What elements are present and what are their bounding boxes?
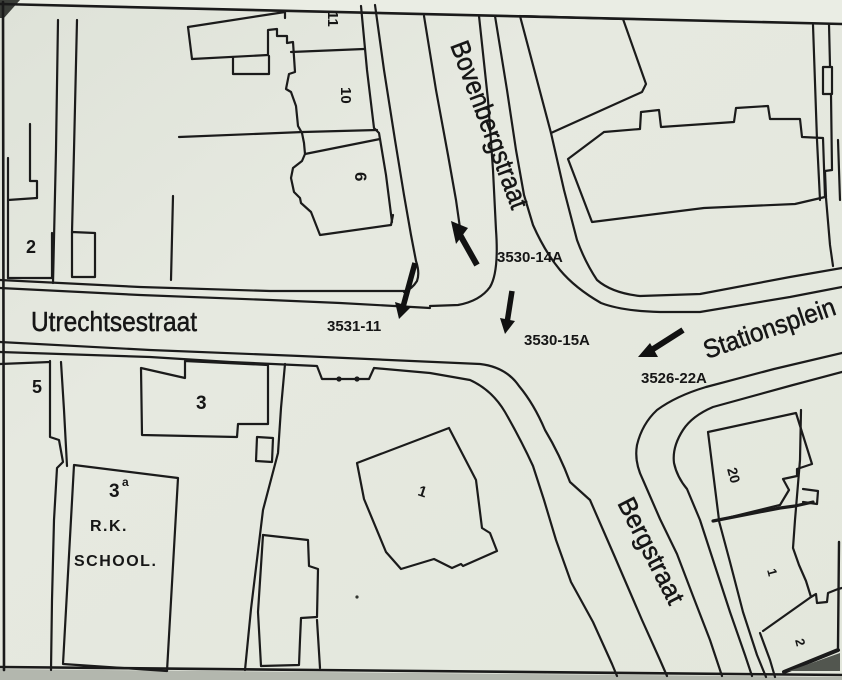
svg-text:2: 2 <box>26 237 36 257</box>
svg-text:11: 11 <box>324 11 341 27</box>
svg-text:R.K.: R.K. <box>90 518 128 535</box>
svg-text:SCHOOL.: SCHOOL. <box>74 553 157 570</box>
svg-text:3: 3 <box>196 393 207 414</box>
svg-text:3530-14A: 3530-14A <box>497 249 563 266</box>
svg-text:a: a <box>122 475 129 489</box>
svg-text:6: 6 <box>351 172 370 181</box>
svg-text:3530-15A: 3530-15A <box>524 332 590 349</box>
svg-text:5: 5 <box>32 377 42 397</box>
svg-text:10: 10 <box>337 87 354 104</box>
svg-text:3526-22A: 3526-22A <box>641 370 707 387</box>
svg-text:Utrechtsestraat: Utrechtsestraat <box>31 306 197 337</box>
svg-text:3: 3 <box>109 481 120 502</box>
svg-text:3531-11: 3531-11 <box>327 318 381 335</box>
